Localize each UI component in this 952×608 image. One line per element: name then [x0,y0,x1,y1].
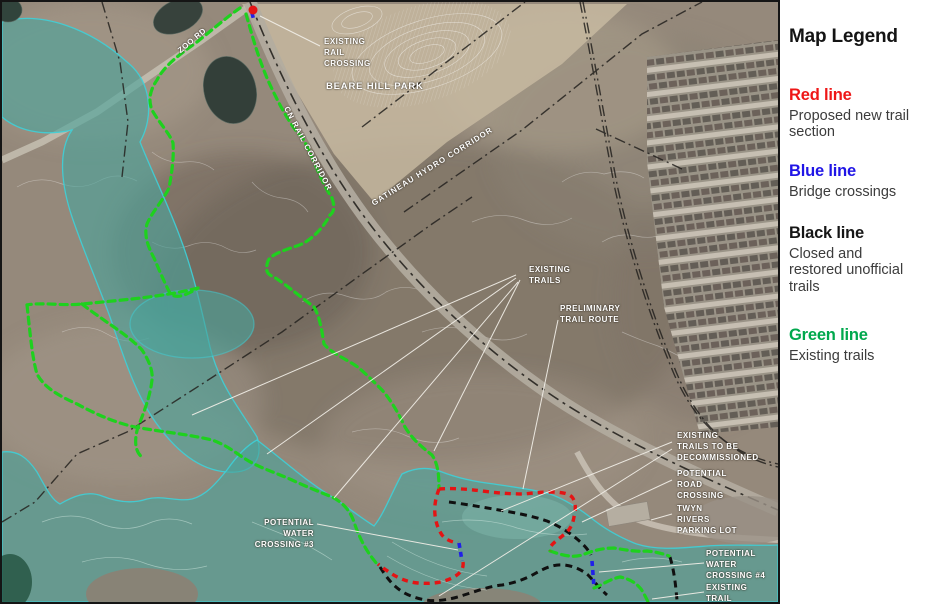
legend-entry-green-line: Green line Existing trails [789,326,947,364]
map-label-preliminary-trail-route: PRELIMINARY TRAIL ROUTE [560,304,620,326]
legend-entry-desc: Proposed new trail section [789,108,947,141]
floodplain-arm [130,290,254,358]
map-label-potential-water-crossing-3: POTENTIAL WATER CROSSING #3 [240,518,314,550]
map-label-twyn-rivers-parking-lot: TWYN RIVERS PARKING LOT [677,504,737,536]
map-label-trails-to-be-decommissioned: EXISTING TRAILS TO BE DECOMMISSIONED [677,431,759,463]
map-label-beare-hill-park: BEARE HILL PARK [326,81,424,94]
legend-entry-desc: Closed and restored unofficial trails [789,246,947,296]
map-legend-panel: Map Legend Red line Proposed new trail s… [780,0,952,608]
legend-entry-blue-line: Blue line Bridge crossings [789,162,947,200]
rail-crossing-marker [249,6,258,15]
legend-entry-desc: Existing trails [789,348,947,365]
map-label-existing-trails: EXISTING TRAILS [529,265,570,287]
legend-entry-name: Blue line [789,162,947,182]
trail-map: ZOO RD CN RAIL CORRIDOR GATINEAU HYDRO C… [0,0,780,604]
legend-entry-name: Red line [789,86,947,106]
legend-title: Map Legend [789,26,898,48]
legend-entry-name: Black line [789,224,947,244]
map-label-potential-road-crossing: POTENTIAL ROAD CROSSING [677,469,727,501]
trail-map-screenshot: ZOO RD CN RAIL CORRIDOR GATINEAU HYDRO C… [0,0,952,608]
legend-entry-red-line: Red line Proposed new trail section [789,86,947,141]
bridge-crossing-4 [592,561,594,587]
legend-entry-desc: Bridge crossings [789,184,947,201]
map-label-existing-rail-crossing: EXISTING RAIL CROSSING [324,37,371,69]
map-label-existing-trail: EXISTING TRAIL [706,583,747,604]
map-label-potential-water-crossing-4: POTENTIAL WATER CROSSING #4 [706,549,765,581]
legend-entry-black-line: Black line Closed and restored unofficia… [789,224,947,296]
legend-entry-name: Green line [789,326,947,346]
